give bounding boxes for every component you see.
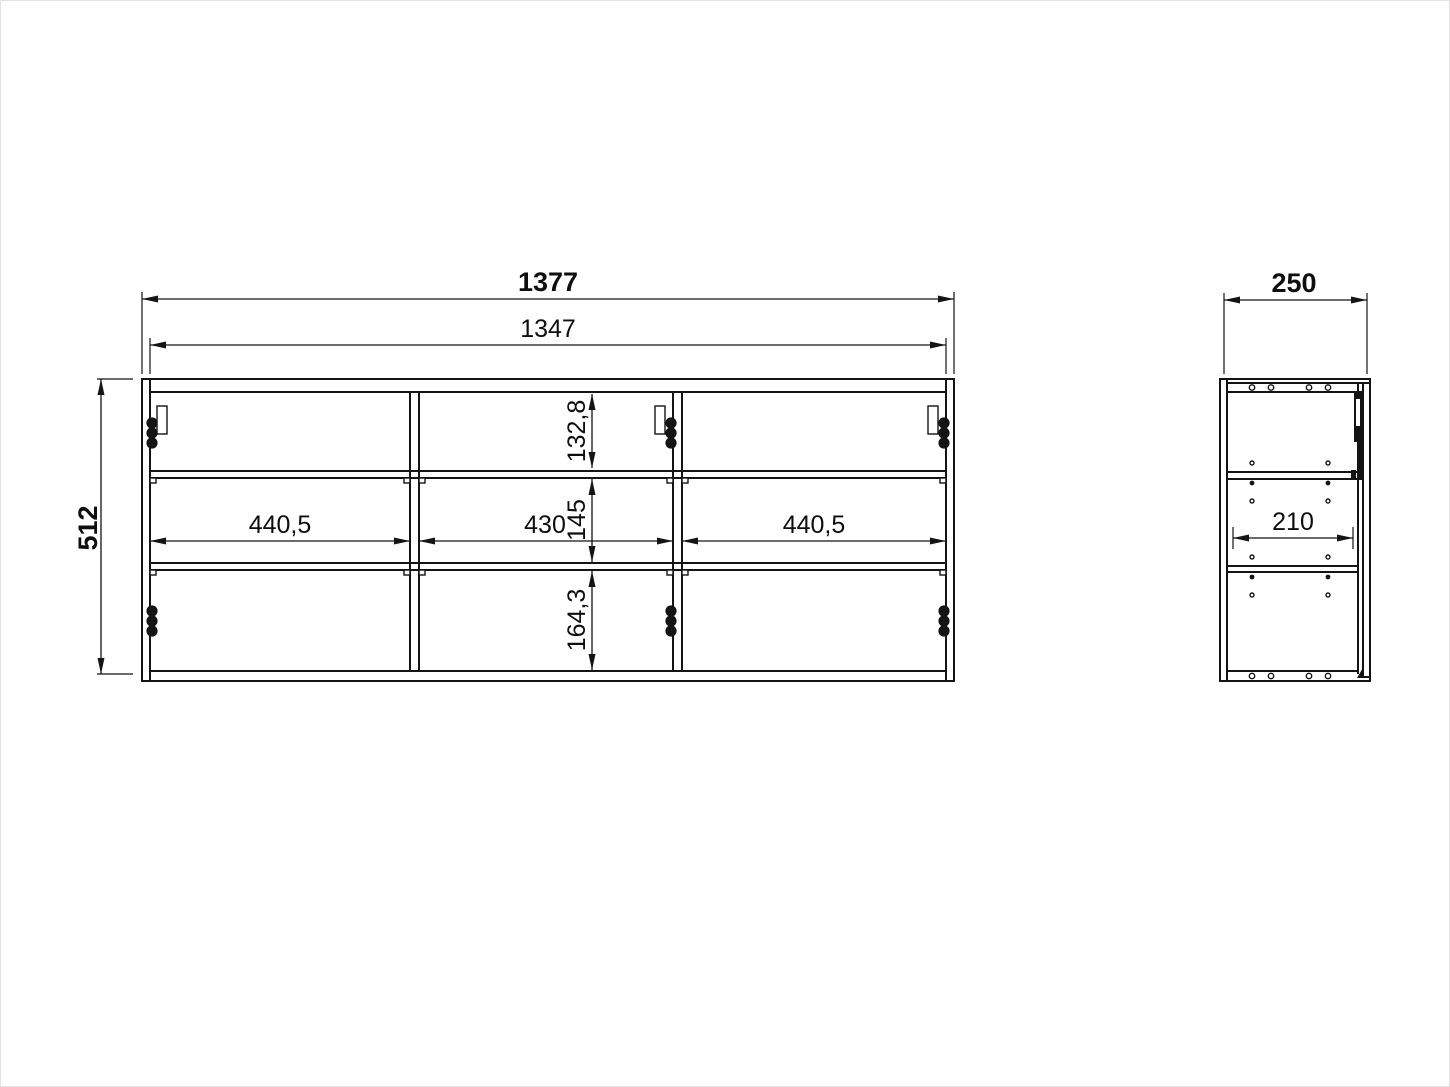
dim-overall-depth-label: 250 [1271,268,1316,298]
dim-inner-depth-label: 210 [1272,508,1314,536]
hinge-plate-left-door [157,406,167,434]
front-view: 1377 1347 512 440,5 430 440,5 [73,267,954,681]
technical-drawing-page: 1377 1347 512 440,5 430 440,5 [0,0,1450,1087]
hinge-right-bottom [938,605,949,636]
hinge-right-top [938,417,949,448]
dim-overall-depth: 250 [1224,268,1367,374]
cabinet-dimension-drawing: 1377 1347 512 440,5 430 440,5 [0,0,1450,1087]
dim-overall-height: 512 [73,379,133,674]
dim-bottom-row-height-label: 164,3 [563,589,591,652]
hinge-middle-bottom [665,605,676,636]
dim-middle-row-height-label: 145 [563,499,591,541]
side-view: 250 210 [1220,268,1370,681]
dim-overall-width-label: 1377 [518,267,578,297]
dim-top-row-height-label: 132,8 [563,400,591,463]
dim-inner-width: 1347 [150,315,946,374]
hinge-left-top [146,417,157,448]
dim-compartment-heights: 132,8 145 164,3 [563,394,592,670]
dim-compartment-widths: 440,5 430 440,5 [150,511,946,541]
dim-overall-height-label: 512 [73,505,103,550]
hinge-plate-middle-door [655,406,665,434]
hinge-left-bottom [146,605,157,636]
dim-left-compartment-width-label: 440,5 [249,511,312,539]
dim-inner-width-label: 1347 [520,315,576,343]
dim-middle-compartment-width-label: 430 [524,511,566,539]
hinge-plate-right-door [928,406,938,434]
dim-right-compartment-width-label: 440,5 [783,511,846,539]
hinge-middle-top [665,417,676,448]
